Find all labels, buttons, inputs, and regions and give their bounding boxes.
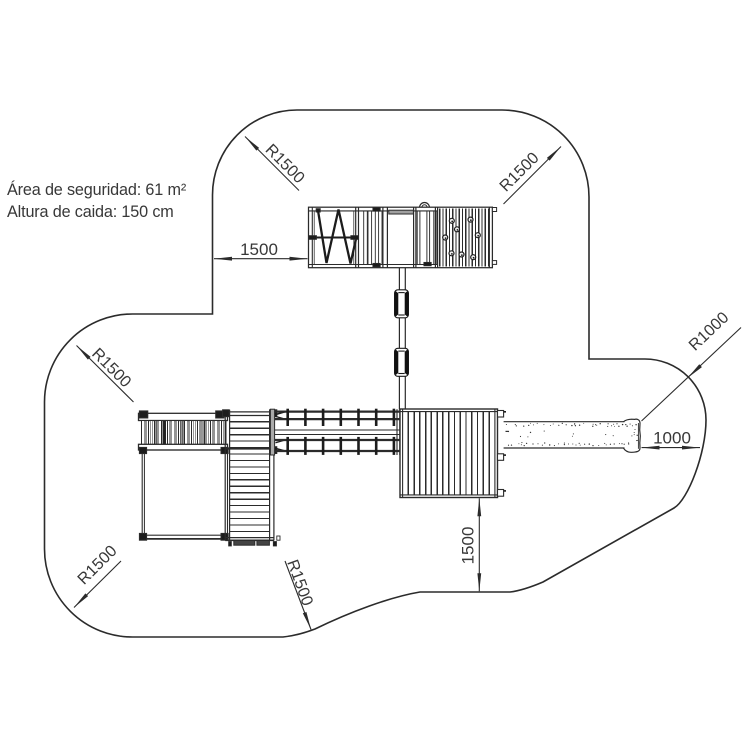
- svg-text:Área de seguridad: 61 m²: Área de seguridad: 61 m²: [7, 180, 187, 199]
- svg-text:R1500: R1500: [74, 542, 120, 588]
- svg-text:R1000: R1000: [685, 309, 732, 355]
- svg-text:1000: 1000: [653, 429, 691, 448]
- svg-text:1500: 1500: [240, 240, 278, 259]
- svg-text:R1500: R1500: [283, 557, 316, 608]
- svg-text:Altura de caida: 150 cm: Altura de caida: 150 cm: [7, 203, 174, 221]
- svg-text:R1500: R1500: [88, 345, 134, 391]
- svg-text:1500: 1500: [459, 527, 478, 565]
- svg-text:R1500: R1500: [262, 141, 308, 187]
